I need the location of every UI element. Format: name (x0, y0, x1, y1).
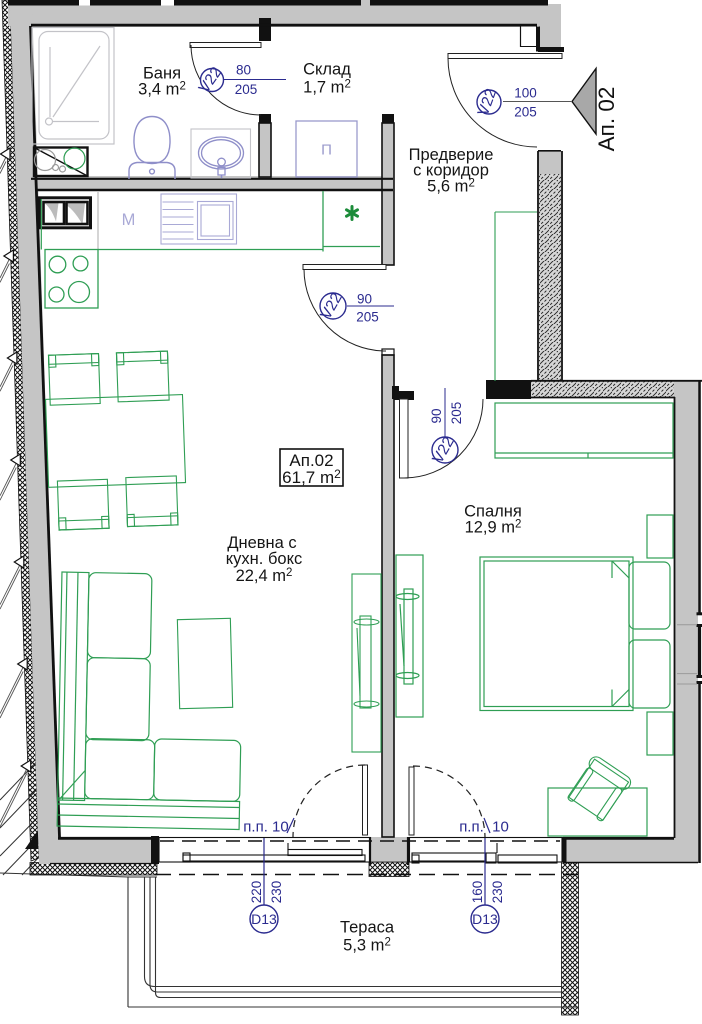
svg-text:Склад: Склад (303, 61, 351, 79)
svg-text:100: 100 (514, 86, 537, 101)
svg-text:5,6 m2: 5,6 m2 (427, 178, 475, 196)
svg-text:1,7 m2: 1,7 m2 (303, 79, 351, 97)
svg-text:3,4 m2: 3,4 m2 (138, 81, 186, 99)
svg-text:п.п. 10: п.п. 10 (459, 819, 509, 836)
svg-text:160: 160 (470, 881, 485, 904)
svg-text:п.п. 10: п.п. 10 (243, 819, 288, 836)
svg-text:М: М (122, 211, 136, 229)
svg-text:220: 220 (249, 881, 264, 904)
svg-text:12,9 m2: 12,9 m2 (465, 519, 522, 537)
svg-text:5,3 m2: 5,3 m2 (343, 937, 391, 955)
svg-text:205: 205 (449, 402, 464, 425)
svg-text:90: 90 (429, 408, 444, 423)
svg-text:D13: D13 (251, 911, 277, 927)
svg-text:Тераса: Тераса (340, 919, 395, 937)
svg-text:90: 90 (357, 292, 372, 307)
svg-text:205: 205 (235, 82, 258, 97)
svg-text:Ап. 02: Ап. 02 (594, 87, 619, 152)
svg-text:П: П (321, 142, 332, 159)
svg-text:кухн. бокс: кухн. бокс (226, 550, 302, 568)
svg-text:230: 230 (490, 881, 505, 904)
svg-text:22,4 m2: 22,4 m2 (236, 567, 293, 585)
svg-text:61,7 m2: 61,7 m2 (282, 467, 341, 487)
svg-text:230: 230 (269, 881, 284, 904)
svg-text:D13: D13 (472, 911, 498, 927)
svg-text:205: 205 (356, 310, 379, 325)
svg-text:205: 205 (514, 105, 537, 120)
svg-text:80: 80 (236, 63, 251, 78)
